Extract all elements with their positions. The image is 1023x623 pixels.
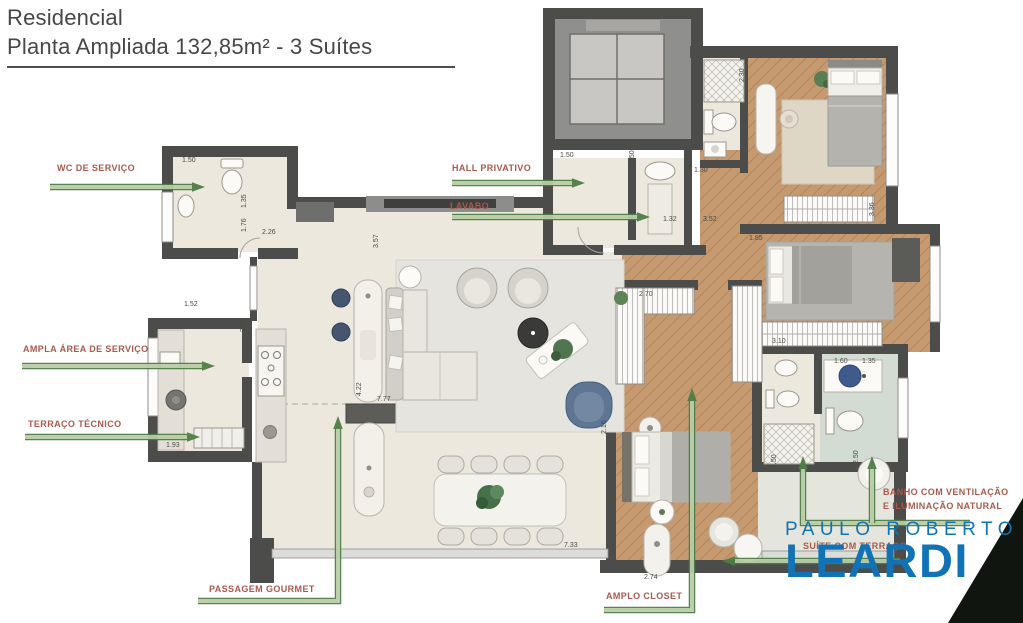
dimension-label: 4.22 — [356, 382, 363, 396]
dimension-label: 1.50 — [560, 152, 574, 159]
dimension-label: 1.50 — [629, 150, 636, 164]
dimension-label: 1.30 — [694, 167, 708, 174]
furniture-lavabo — [645, 162, 675, 234]
dimension-label: 2.74 — [644, 574, 658, 581]
dimension-label: 1.52 — [184, 301, 198, 308]
leardi-logo: PAULO ROBERTO LEARDI — [785, 519, 1018, 584]
logo-line2: LEARDI — [785, 537, 1018, 584]
dimension-label: 3.36 — [869, 202, 876, 216]
callout-label-lavabo: LAVABO — [450, 201, 489, 211]
plan-title-line2: Planta Ampliada 132,85m² - 3 Suítes — [7, 32, 455, 61]
dimension-label: 7.77 — [377, 396, 391, 403]
dimension-label: 1.85 — [749, 235, 763, 242]
plan-title-line1: Residencial — [7, 3, 455, 32]
callout-label-wc-de-servico: WC DE SERVIÇO — [57, 163, 135, 173]
plan-title: Residencial Planta Ampliada 132,85m² - 3… — [7, 3, 455, 68]
dimension-label: 2.26 — [262, 229, 276, 236]
elevator-shaft — [543, 8, 703, 150]
callout-label-hall-privativo: HALL PRIVATIVO — [452, 163, 531, 173]
dimension-label: 3.57 — [373, 234, 380, 248]
dimension-label: 2.50 — [853, 450, 860, 464]
dimension-label: 1.76 — [241, 218, 248, 232]
dimension-label: 3.10 — [772, 338, 786, 345]
dimension-label: 1.35 — [241, 194, 248, 208]
callout-label-terraco-tecnico: TERRAÇO TÉCNICO — [28, 419, 122, 429]
dimension-label: 1.32 — [663, 216, 677, 223]
dimension-label: 7.33 — [564, 542, 578, 549]
dimension-label: 3.52 — [703, 216, 717, 223]
dimension-label: 1.50 — [182, 157, 196, 164]
furniture-living — [386, 260, 624, 432]
floor-plan-page: 1.501.351.762.261.522.771.933.574.227.77… — [0, 0, 1023, 623]
dimension-label: 2.16 — [601, 420, 608, 434]
dimension-label: 2.50 — [771, 454, 778, 468]
callout-label-banho-ventilacao: BANHO COM VENTILAÇÃO E ILUMINAÇÃO NATURA… — [883, 486, 1013, 513]
dimension-label: 2.77 — [240, 318, 247, 332]
callout-label-passagem-gourmet: PASSAGEM GOURMET — [209, 584, 315, 594]
dimension-label: 1.60 — [834, 358, 848, 365]
dimension-label: 2.70 — [639, 291, 653, 298]
dimension-label: 1.93 — [166, 442, 180, 449]
dimension-label: 1.35 — [862, 358, 876, 365]
callout-label-amplo-closet: AMPLO CLOSET — [606, 591, 682, 601]
callout-label-ampla-area-de-servico: AMPLA ÁREA DE SERVIÇO — [23, 344, 149, 354]
dimension-label: 2.30 — [739, 68, 746, 82]
